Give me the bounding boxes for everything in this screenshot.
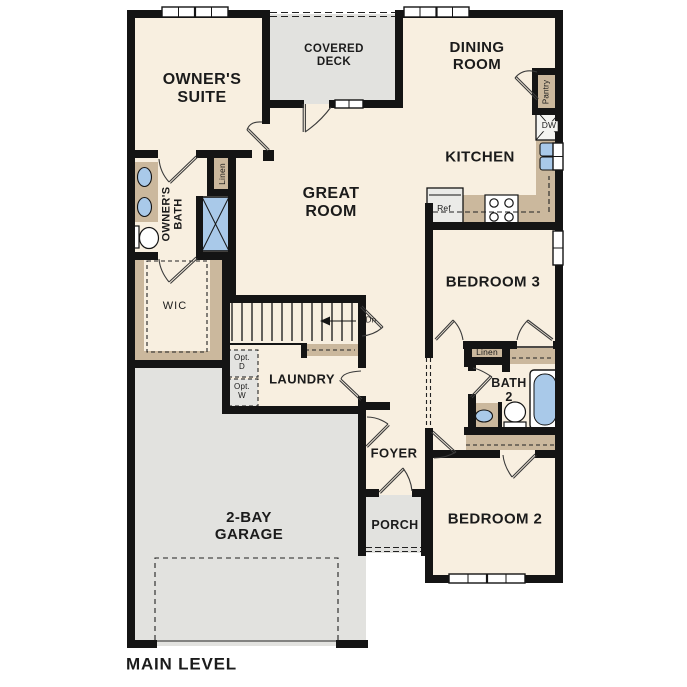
label-garage: 2-BAY GARAGE: [215, 510, 283, 544]
bedroom2-closet: [466, 433, 560, 450]
label-dn: Dn: [366, 317, 377, 326]
label-pantry: Pantry: [542, 80, 551, 104]
bath2-counter: [510, 348, 555, 364]
label-dining-room: DINING ROOM: [450, 40, 505, 74]
owners-sink-2: [138, 198, 152, 217]
stove: [485, 195, 518, 224]
label-bath2: BATH 2: [491, 376, 526, 404]
plan-level-title: MAIN LEVEL: [126, 654, 237, 673]
label-opt-d: Opt. D: [234, 354, 250, 372]
owners-toilet: [140, 228, 159, 249]
label-dishwasher: DW: [541, 121, 558, 131]
label-kitchen: KITCHEN: [445, 150, 514, 167]
label-bedroom3: BEDROOM 3: [446, 275, 540, 292]
floor-plan-drawing: [0, 0, 687, 687]
label-bedroom2: BEDROOM 2: [448, 512, 542, 529]
label-owners-bath: OWNER'S BATH: [161, 187, 186, 242]
label-covered-deck: COVERED DECK: [304, 43, 364, 69]
label-opt-w: Opt. W: [234, 383, 250, 401]
label-laundry: LAUNDRY: [269, 373, 335, 388]
label-refrigerator: Ref: [437, 204, 451, 214]
bathtub-basin: [534, 374, 556, 425]
bath2-toilet: [505, 402, 526, 422]
label-great-room: GREAT ROOM: [303, 185, 360, 221]
label-foyer: FOYER: [371, 447, 418, 462]
owners-sink-1: [138, 168, 152, 187]
label-porch: PORCH: [371, 518, 418, 532]
floor-plan: OWNER'S SUITE COVERED DECK DINING ROOM K…: [0, 0, 687, 687]
label-linen-owners: Linen: [218, 163, 228, 185]
label-wic: WIC: [163, 300, 187, 312]
label-owners-suite: OWNER'S SUITE: [163, 71, 242, 107]
label-linen-hall: Linen: [476, 348, 498, 358]
bath2-sink: [476, 410, 493, 422]
